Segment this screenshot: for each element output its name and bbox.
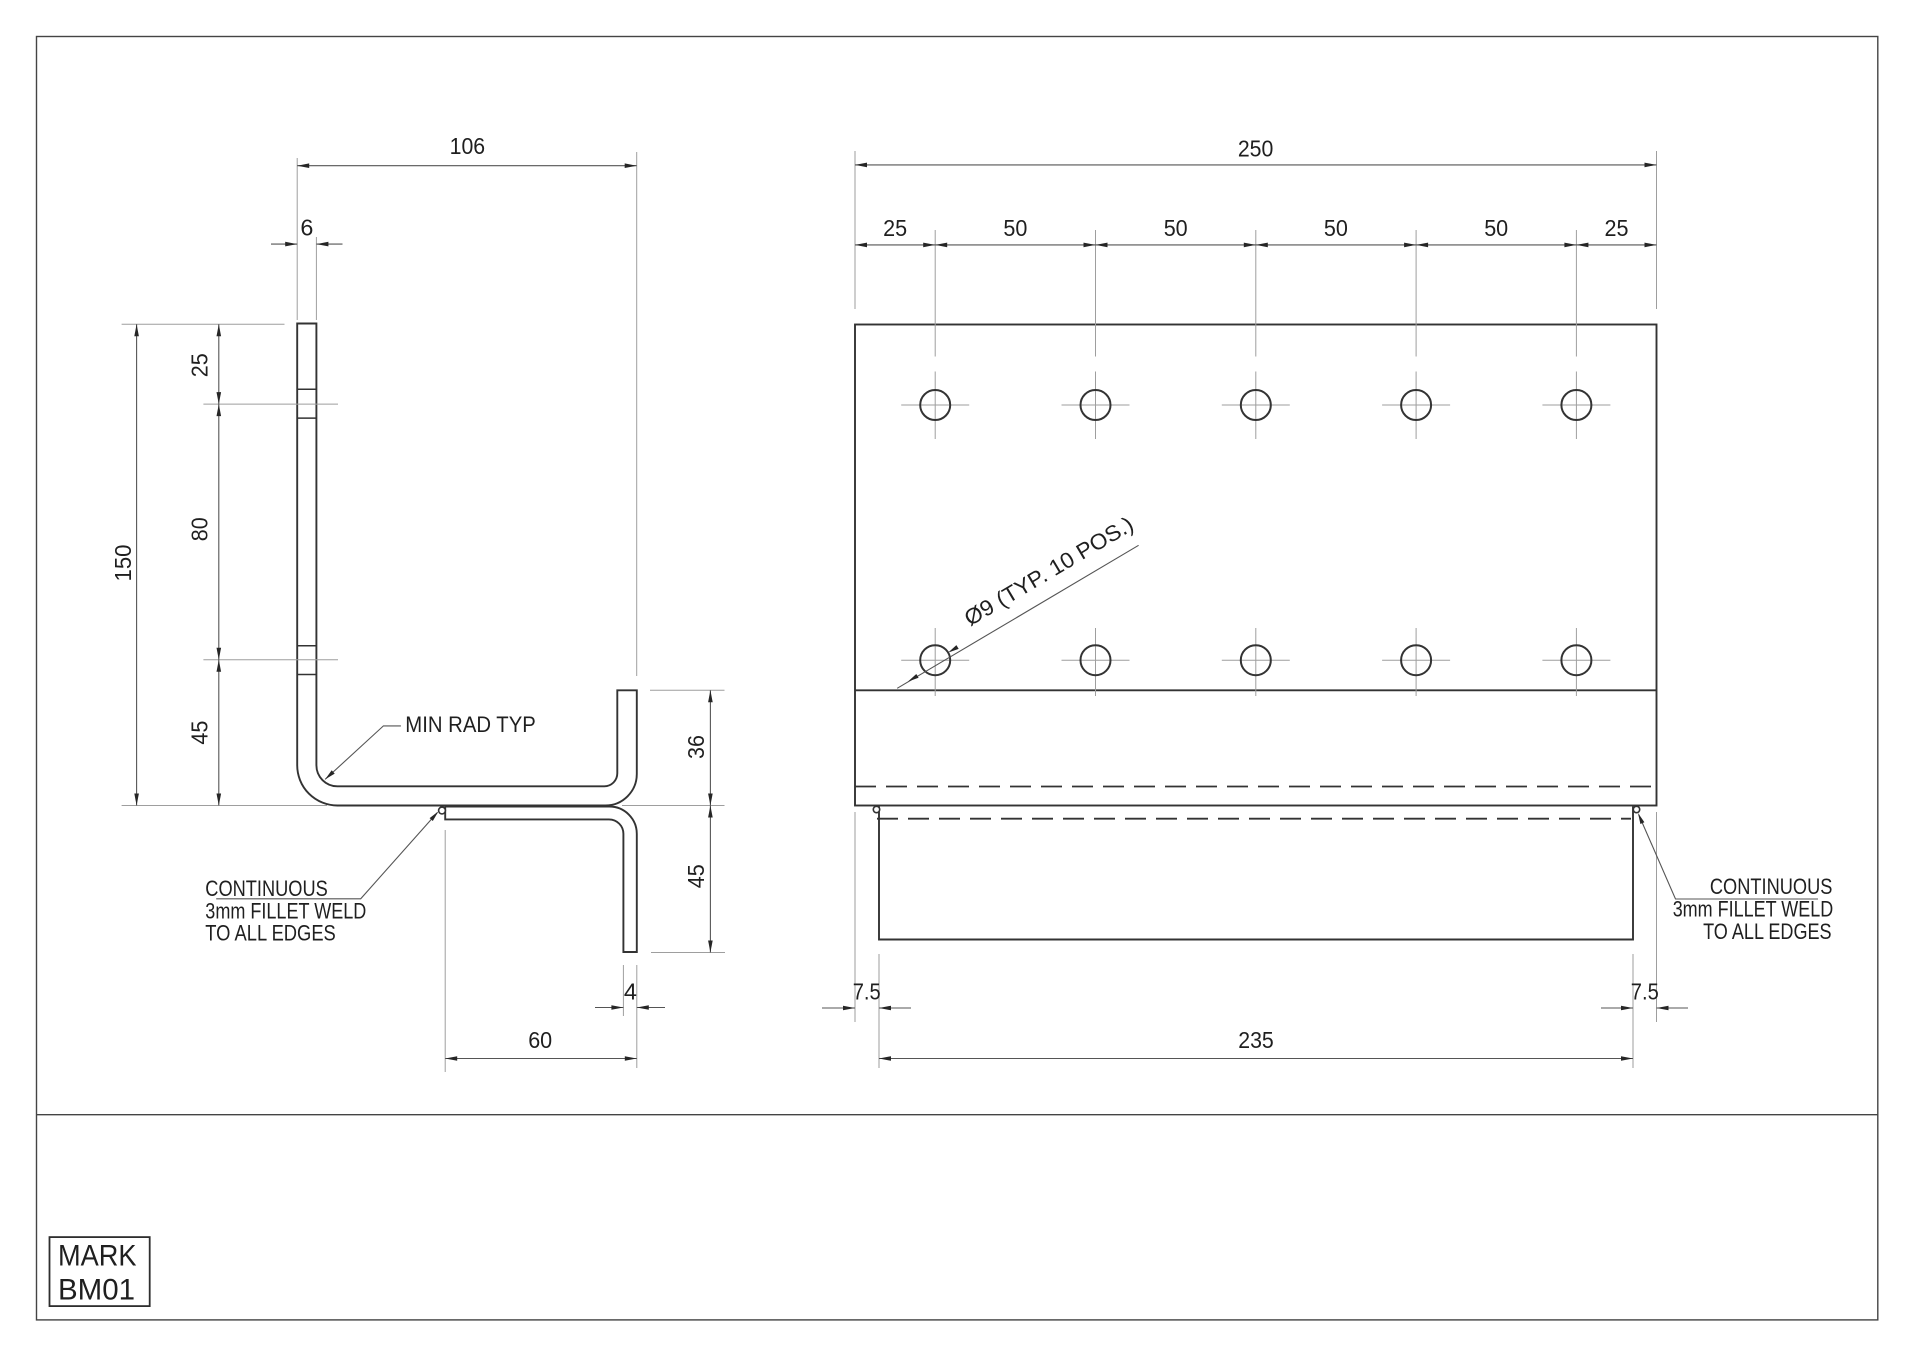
svg-text:TO ALL EDGES: TO ALL EDGES bbox=[205, 920, 335, 945]
svg-text:60: 60 bbox=[528, 1027, 552, 1053]
svg-text:4: 4 bbox=[624, 979, 637, 1005]
svg-text:50: 50 bbox=[1324, 215, 1348, 241]
svg-text:6: 6 bbox=[300, 215, 313, 241]
svg-text:50: 50 bbox=[1164, 215, 1188, 241]
svg-text:50: 50 bbox=[1003, 215, 1027, 241]
svg-text:25: 25 bbox=[883, 215, 907, 241]
svg-text:45: 45 bbox=[683, 864, 709, 888]
svg-text:25: 25 bbox=[187, 353, 213, 377]
svg-text:25: 25 bbox=[1605, 215, 1629, 241]
svg-text:TO ALL EDGES: TO ALL EDGES bbox=[1703, 919, 1832, 944]
svg-text:150: 150 bbox=[110, 545, 136, 582]
svg-text:80: 80 bbox=[187, 517, 213, 541]
svg-text:7.5: 7.5 bbox=[1631, 979, 1659, 1005]
svg-text:7.5: 7.5 bbox=[853, 979, 881, 1005]
svg-text:CONTINUOUS: CONTINUOUS bbox=[205, 876, 327, 901]
svg-text:50: 50 bbox=[1484, 215, 1508, 241]
svg-text:MARK: MARK bbox=[58, 1240, 137, 1273]
svg-text:3mm FILLET WELD: 3mm FILLET WELD bbox=[1673, 897, 1834, 922]
svg-text:MIN RAD TYP: MIN RAD TYP bbox=[405, 712, 536, 737]
svg-text:106: 106 bbox=[450, 133, 486, 159]
svg-text:36: 36 bbox=[683, 735, 709, 759]
svg-text:45: 45 bbox=[187, 721, 213, 745]
svg-text:250: 250 bbox=[1238, 135, 1274, 161]
svg-text:BM01: BM01 bbox=[58, 1274, 135, 1307]
svg-text:235: 235 bbox=[1238, 1027, 1274, 1053]
svg-text:CONTINUOUS: CONTINUOUS bbox=[1710, 874, 1833, 899]
